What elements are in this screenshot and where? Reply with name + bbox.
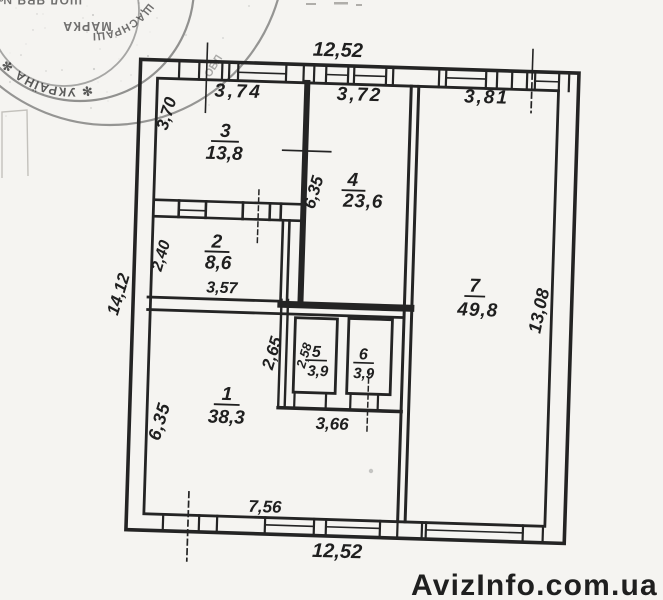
svg-text:3,81: 3,81 <box>464 86 510 108</box>
svg-text:3: 3 <box>220 121 232 142</box>
svg-text:3,9: 3,9 <box>353 365 375 383</box>
svg-text:МАРКА: МАРКА <box>62 19 111 33</box>
svg-text:12,52: 12,52 <box>313 39 364 63</box>
svg-text:13,8: 13,8 <box>205 143 243 165</box>
svg-text:3,57: 3,57 <box>206 279 239 297</box>
svg-text:12,52: 12,52 <box>312 540 363 564</box>
svg-text:1: 1 <box>221 384 232 405</box>
svg-text:3,66: 3,66 <box>315 414 349 434</box>
svg-text:3,74: 3,74 <box>214 81 263 104</box>
svg-text:4: 4 <box>346 170 359 191</box>
svg-text:3,9: 3,9 <box>307 363 329 381</box>
svg-text:3,72: 3,72 <box>336 84 382 106</box>
svg-text:7,56: 7,56 <box>248 497 282 517</box>
svg-text:2: 2 <box>210 231 223 252</box>
svg-text:5: 5 <box>312 344 323 361</box>
svg-text:38,3: 38,3 <box>207 406 245 428</box>
svg-text:8,6: 8,6 <box>205 252 232 274</box>
svg-text:6: 6 <box>359 346 369 363</box>
svg-text:AvizInfo.com.ua: AvizInfo.com.ua <box>411 569 658 600</box>
svg-text:23,6: 23,6 <box>342 191 384 213</box>
svg-text:ШОЛ ЯВЯ №9: ШОЛ ЯВЯ №9 <box>0 0 82 7</box>
svg-text:49,8: 49,8 <box>456 299 499 321</box>
